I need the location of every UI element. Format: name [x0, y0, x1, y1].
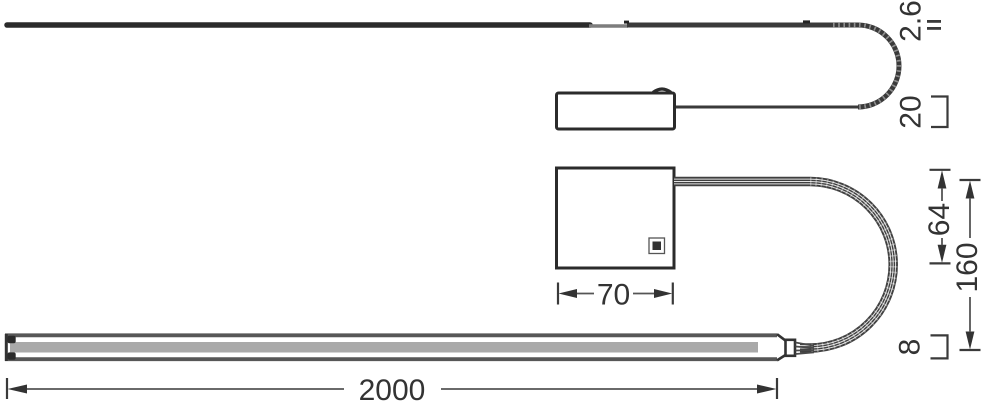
led-strip: [5, 334, 814, 361]
cable-crimp-mark: [624, 21, 629, 24]
dim-connector-height: 20: [895, 95, 948, 128]
dim-connector-height-label: 20: [895, 95, 928, 128]
power-cable-assembly: [7, 20, 899, 129]
strip-end-terminal: [8, 336, 16, 343]
cable-crimp-mark: [803, 20, 810, 23]
dim-driver-height-label: 64: [923, 203, 956, 236]
bracket-strip-height: [931, 335, 948, 358]
dim-64-up-arrow: [938, 170, 947, 188]
wire-strand-line: [674, 184, 891, 346]
strip-endcap-nub: [786, 340, 796, 356]
dim-strip-length-label: 2000: [359, 374, 426, 407]
dim-strip-length: 2000: [7, 374, 777, 407]
wire-bundle-loop: [674, 179, 896, 350]
inline-connector-box: [557, 93, 675, 129]
dim-strip-height: 8: [894, 335, 948, 358]
dim-2000-left-arrow: [8, 385, 28, 394]
diameter-tick-top: [927, 20, 941, 23]
dim-cable-diameter-label: 2.6: [895, 0, 928, 42]
diameter-tick-bottom: [927, 27, 941, 30]
dim-loop-clearance-label: 160: [951, 242, 984, 292]
dim-driver-width: 70: [558, 279, 673, 312]
dim-70-right-arrow: [654, 289, 672, 298]
dim-160-down-arrow: [966, 332, 975, 350]
strip-end-terminal: [8, 352, 16, 359]
dim-driver-width-label: 70: [597, 279, 630, 312]
cable-bend-braid-texture: [833, 25, 899, 107]
driver-box: [557, 168, 675, 268]
dim-70-left-arrow: [559, 289, 578, 298]
dim-strip-height-label: 8: [894, 339, 927, 356]
wire-strand-line: [674, 182, 893, 349]
bracket-connector-height: [931, 97, 948, 128]
dim-2000-right-arrow: [757, 385, 777, 394]
wire-band: [674, 182, 893, 349]
dim-64-down-arrow: [938, 245, 947, 263]
strip-led-channel: [10, 342, 758, 353]
dim-cable-diameter: 2.6: [895, 0, 942, 42]
wire-band-braid-texture: [810, 182, 893, 349]
dimension-drawing: 2.6 20 70 64: [0, 0, 1000, 418]
driver-box-detail-square: [653, 242, 662, 251]
dim-160-up-arrow: [966, 181, 975, 199]
